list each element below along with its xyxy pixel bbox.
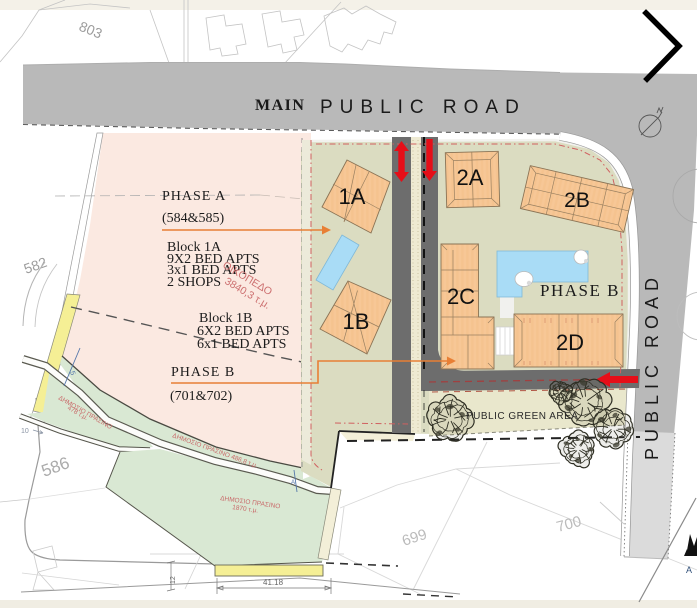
svg-text:MAIN: MAIN <box>255 97 305 114</box>
svg-text:1B: 1B <box>343 309 370 334</box>
svg-text:(701&702): (701&702) <box>170 389 233 404</box>
svg-text:2C: 2C <box>447 284 475 309</box>
svg-text:PHASE A: PHASE A <box>162 189 226 204</box>
svg-text:A: A <box>291 480 295 486</box>
svg-text:A: A <box>686 565 692 575</box>
svg-text:PUBLIC ROAD: PUBLIC ROAD <box>320 97 526 118</box>
svg-text:2 SHOPS: 2 SHOPS <box>167 275 221 290</box>
svg-text:12: 12 <box>170 576 177 584</box>
svg-text:2D: 2D <box>556 330 584 355</box>
svg-text:PHASE B: PHASE B <box>540 281 620 300</box>
svg-text:PUBLIC ROAD: PUBLIC ROAD <box>642 272 662 460</box>
svg-text:2A: 2A <box>457 165 484 190</box>
svg-text:41.18: 41.18 <box>263 578 284 587</box>
svg-text:2B: 2B <box>564 189 590 212</box>
svg-text:(584&585): (584&585) <box>162 211 225 226</box>
svg-text:6x1 BED APTS: 6x1 BED APTS <box>197 337 286 352</box>
svg-text:10: 10 <box>21 428 29 435</box>
svg-text:1A: 1A <box>339 184 366 209</box>
svg-text:PUBLIC GREEN AREA: PUBLIC GREEN AREA <box>466 411 578 422</box>
svg-text:PHASE B: PHASE B <box>171 365 235 380</box>
